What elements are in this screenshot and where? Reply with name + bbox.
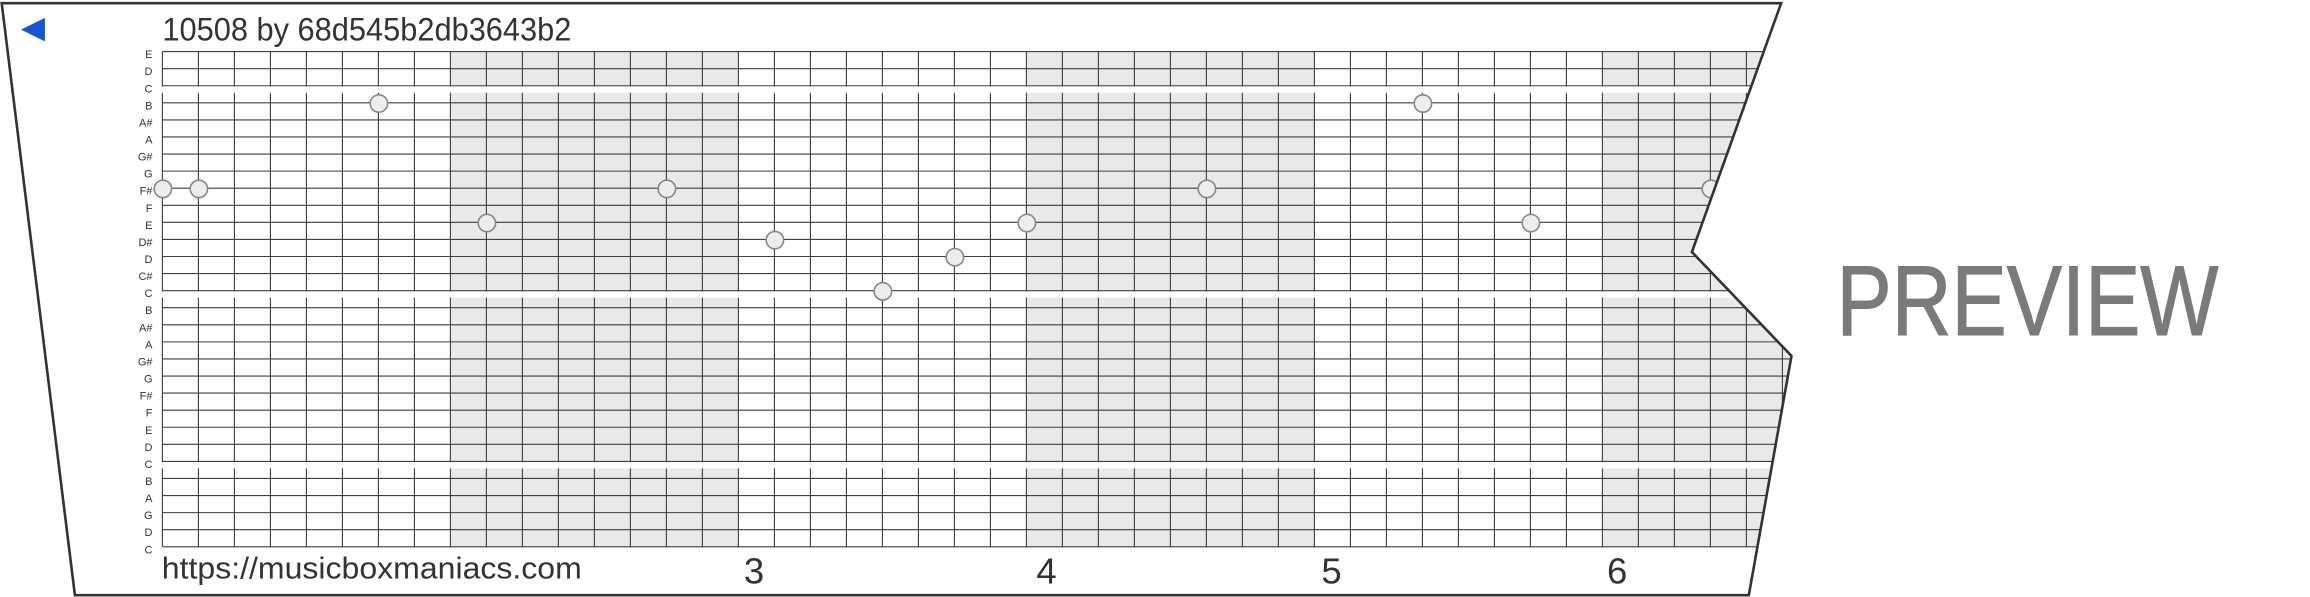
svg-text:D: D (145, 66, 153, 78)
svg-text:G#: G# (138, 356, 154, 368)
svg-text:A: A (145, 339, 153, 351)
svg-text:D: D (145, 527, 153, 539)
svg-text:F#: F# (140, 391, 154, 403)
svg-text:G: G (144, 374, 153, 386)
svg-text:PREVIEW: PREVIEW (1837, 246, 2219, 357)
svg-text:C#: C# (138, 271, 153, 283)
svg-text:C: C (145, 83, 153, 95)
svg-text:F#: F# (140, 186, 154, 198)
svg-text:A#: A# (139, 322, 153, 334)
svg-text:G: G (144, 510, 153, 522)
svg-text:E: E (145, 220, 152, 232)
svg-text:A: A (145, 134, 153, 146)
svg-text:C: C (145, 459, 153, 471)
svg-text:D: D (145, 442, 153, 454)
svg-text:5: 5 (1321, 551, 1341, 592)
svg-text:3: 3 (744, 551, 764, 592)
svg-text:F: F (146, 203, 153, 215)
svg-text:4: 4 (1036, 551, 1056, 592)
svg-text:C: C (145, 544, 153, 556)
svg-text:B: B (145, 305, 152, 317)
svg-text:E: E (145, 425, 152, 437)
svg-text:E: E (145, 49, 152, 61)
svg-text:C: C (145, 288, 153, 300)
svg-text:A: A (145, 493, 153, 505)
svg-text:6: 6 (1607, 551, 1627, 592)
svg-text:https://musicboxmaniacs.com: https://musicboxmaniacs.com (162, 551, 582, 586)
svg-text:F: F (146, 408, 153, 420)
svg-text:A#: A# (139, 117, 153, 129)
svg-text:G#: G# (138, 152, 154, 164)
svg-text:D: D (145, 254, 153, 266)
svg-text:B: B (145, 100, 152, 112)
svg-text:B: B (145, 476, 152, 488)
svg-text:G: G (144, 169, 153, 181)
svg-text:D#: D# (138, 237, 153, 249)
svg-text:10508 by 68d545b2db3643b2: 10508 by 68d545b2db3643b2 (162, 11, 571, 47)
